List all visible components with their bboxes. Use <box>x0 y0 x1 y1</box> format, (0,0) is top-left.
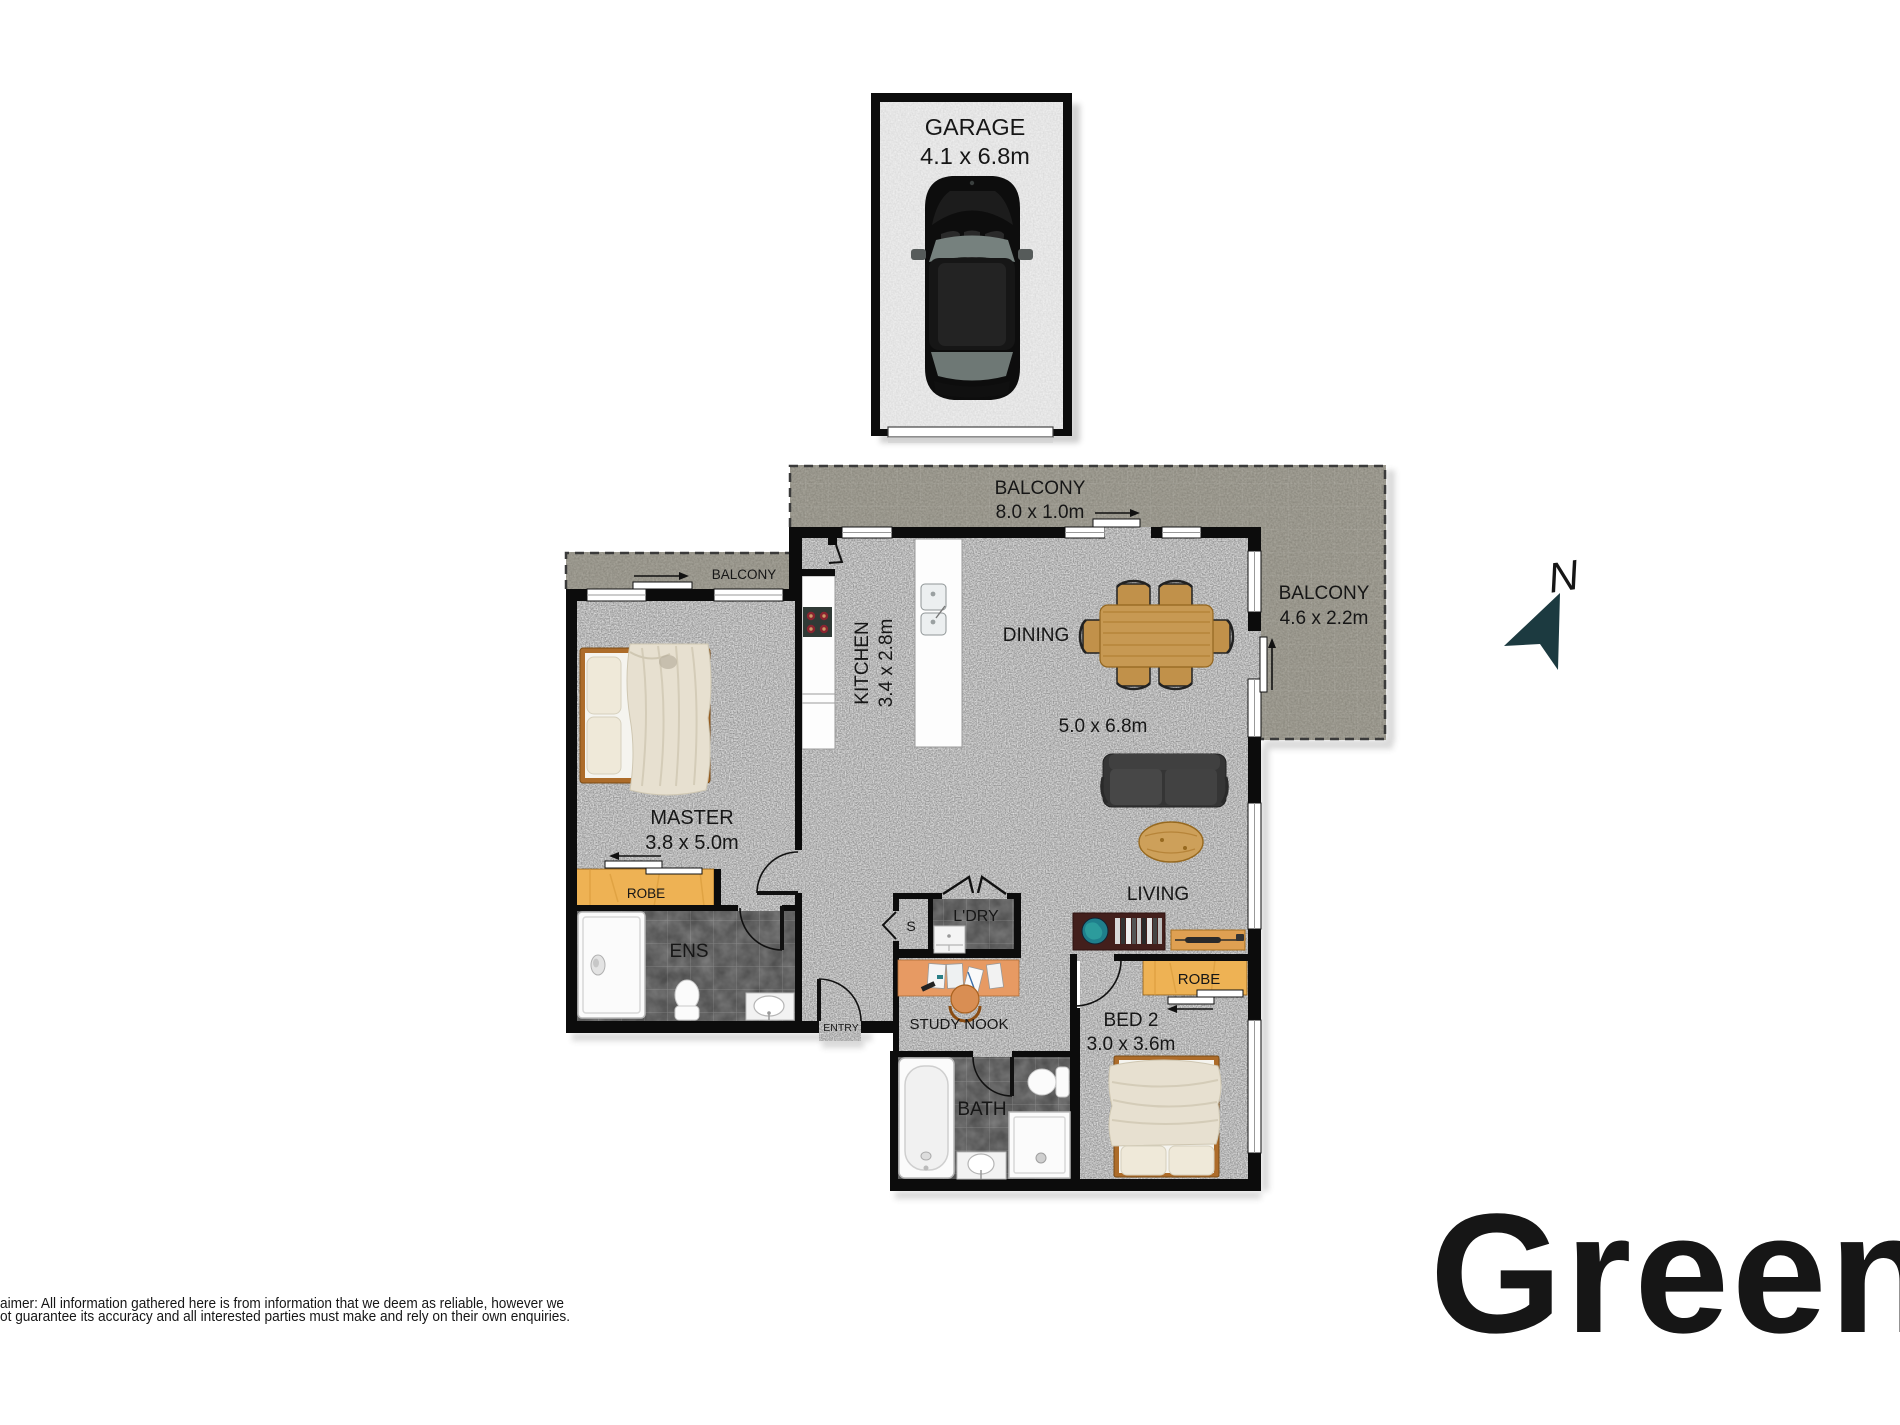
svg-text:ENTRY: ENTRY <box>823 1022 858 1034</box>
svg-text:8.0 x 1.0m: 8.0 x 1.0m <box>996 502 1085 523</box>
svg-text:KITCHEN: KITCHEN <box>852 621 873 704</box>
svg-text:BED 2: BED 2 <box>1104 1010 1159 1031</box>
svg-text:4.6 x 2.2m: 4.6 x 2.2m <box>1280 608 1369 629</box>
svg-text:3.0 x 3.6m: 3.0 x 3.6m <box>1087 1034 1176 1055</box>
svg-text:BALCONY: BALCONY <box>712 567 777 582</box>
svg-text:3.4 x 2.8m: 3.4 x 2.8m <box>876 619 897 708</box>
svg-text:BALCONY: BALCONY <box>1279 583 1370 604</box>
svg-text:LIVING: LIVING <box>1127 884 1189 905</box>
svg-text:ROBE: ROBE <box>1178 971 1221 988</box>
svg-text:L'DRY: L'DRY <box>953 908 999 925</box>
svg-text:BALCONY: BALCONY <box>995 478 1086 499</box>
svg-text:MASTER: MASTER <box>650 807 733 829</box>
svg-text:S: S <box>906 918 915 934</box>
svg-text:DINING: DINING <box>1003 625 1070 646</box>
svg-text:ROBE: ROBE <box>627 886 665 901</box>
svg-text:ENS: ENS <box>669 941 708 962</box>
svg-text:5.0 x 6.8m: 5.0 x 6.8m <box>1059 716 1148 737</box>
svg-text:GARAGE: GARAGE <box>925 114 1026 140</box>
svg-text:STUDY NOOK: STUDY NOOK <box>910 1016 1009 1033</box>
svg-text:ot guarantee its accuracy and: ot guarantee its accuracy and all intere… <box>0 1308 570 1325</box>
svg-text:4.1 x 6.8m: 4.1 x 6.8m <box>920 143 1030 169</box>
svg-text:3.8 x 5.0m: 3.8 x 5.0m <box>645 832 738 854</box>
svg-text:Green: Green <box>1430 1179 1900 1369</box>
svg-text:BATH: BATH <box>957 1099 1006 1120</box>
